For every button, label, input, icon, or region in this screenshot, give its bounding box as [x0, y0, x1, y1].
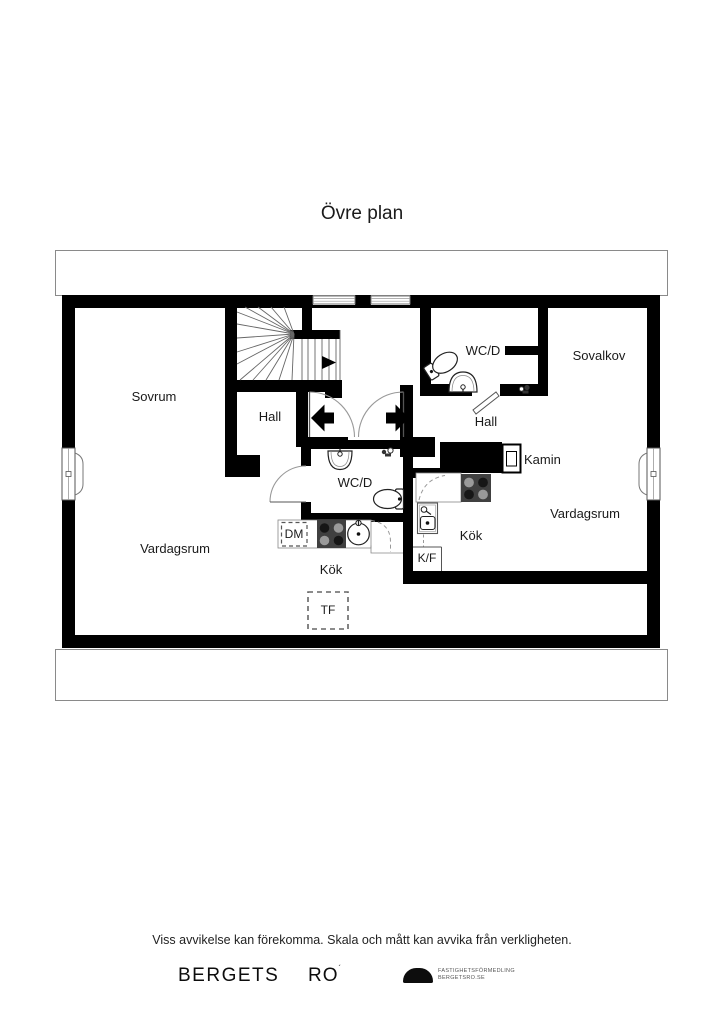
brand-ro-mark: ´ [339, 964, 343, 973]
door-leaf-icon [473, 392, 499, 414]
window-icon [639, 448, 660, 500]
stairs-icon [237, 307, 340, 380]
brand-bergets: BERGETS [178, 965, 279, 987]
brand-ro: RO´ [308, 965, 342, 987]
room-label-sovalkov: Sovalkov [549, 348, 649, 363]
brand-ro-text: RO [308, 965, 339, 986]
room-label-wcd-top: WC/D [443, 343, 523, 358]
stove-icon [461, 474, 491, 502]
window-icon [62, 448, 83, 500]
room-label-hall-left: Hall [240, 409, 300, 424]
label-dm: DM [279, 527, 309, 541]
sink-icon [449, 372, 477, 393]
room-label-kok-center: Kök [301, 562, 361, 577]
room-label-vardagsrum-right: Vardagsrum [525, 506, 645, 521]
room-label-kok-right: Kök [441, 528, 501, 543]
label-tf: TF [308, 603, 348, 617]
fireplace-icon [503, 445, 521, 473]
door-arc-icon [270, 466, 306, 502]
arrow-left-icon [311, 405, 334, 432]
room-label-kamin: Kamin [524, 452, 594, 467]
sink-icon [418, 503, 438, 534]
small-fixture-icon [382, 448, 393, 457]
toilet-icon [374, 489, 404, 509]
label-kf: K/F [407, 551, 447, 565]
agency-line1: FASTIGHETSFÖRMEDLING [438, 968, 515, 975]
room-label-hall-right: Hall [456, 414, 516, 429]
room-label-vardagsrum-left: Vardagsrum [115, 541, 235, 556]
fireplace-mass [440, 442, 502, 473]
sink-icon [328, 449, 352, 470]
stove-icon [317, 520, 346, 548]
floorplan-page: Övre plan [0, 0, 724, 1024]
room-label-wcd-center: WC/D [315, 475, 395, 490]
room-label-sovrum: Sovrum [104, 389, 204, 404]
kitchen-counter-right [416, 473, 461, 502]
agency-line2: BERGETSRO.SE [438, 975, 515, 982]
disclaimer-text: Viss avvikelse kan förekomma. Skala och … [0, 933, 724, 947]
agency-text: FASTIGHETSFÖRMEDLING BERGETSRO.SE [438, 968, 515, 982]
